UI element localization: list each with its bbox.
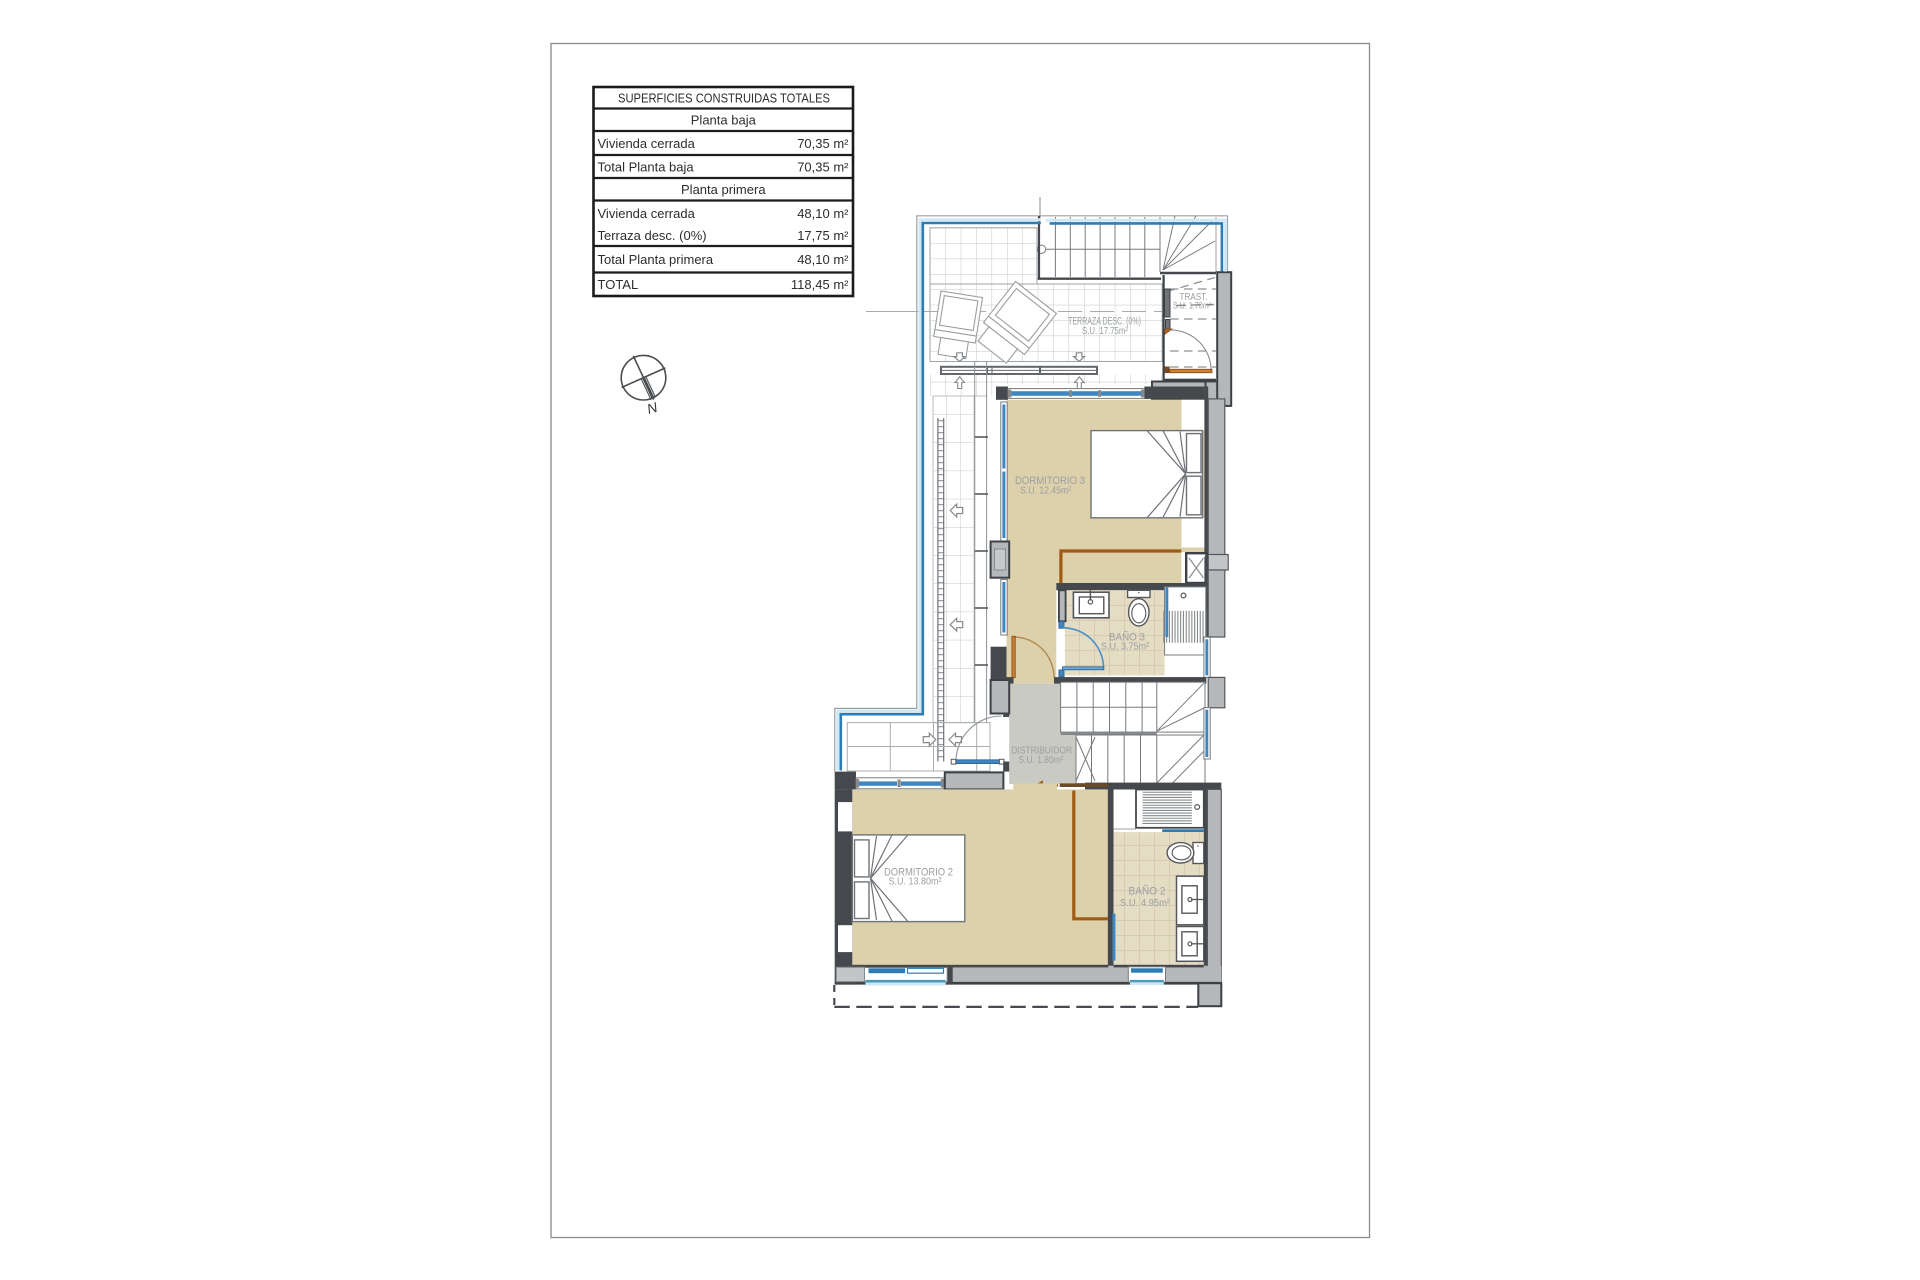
svg-text:TOTAL: TOTAL xyxy=(598,277,639,292)
svg-text:Planta primera: Planta primera xyxy=(681,182,766,197)
svg-text:S.U. 3.75m²: S.U. 3.75m² xyxy=(1101,642,1150,653)
svg-text:SUPERFICIES CONSTRUIDAS TOTALE: SUPERFICIES CONSTRUIDAS TOTALES xyxy=(618,91,830,106)
svg-text:48,10 m²: 48,10 m² xyxy=(797,252,849,267)
svg-text:Terraza desc. (0%): Terraza desc. (0%) xyxy=(598,228,707,243)
svg-text:S.U. 1.80m²: S.U. 1.80m² xyxy=(1019,755,1065,766)
svg-text:Total Planta baja: Total Planta baja xyxy=(598,159,695,174)
svg-text:S.U. 13.80m²: S.U. 13.80m² xyxy=(889,877,943,888)
svg-text:BAÑO 2: BAÑO 2 xyxy=(1129,884,1166,897)
svg-text:118,45 m²: 118,45 m² xyxy=(791,277,849,292)
svg-text:70,35 m²: 70,35 m² xyxy=(797,159,849,174)
svg-text:S.U. 17.75m²: S.U. 17.75m² xyxy=(1082,325,1128,337)
svg-text:48,10 m²: 48,10 m² xyxy=(797,206,849,221)
svg-text:Planta baja: Planta baja xyxy=(691,113,757,128)
svg-text:S.U. 12.45m²: S.U. 12.45m² xyxy=(1020,486,1072,497)
svg-text:Vivienda cerrada: Vivienda cerrada xyxy=(598,206,696,221)
svg-text:17,75 m²: 17,75 m² xyxy=(797,228,849,243)
svg-text:S.U. 4.95m²: S.U. 4.95m² xyxy=(1120,898,1171,909)
svg-text:70,35 m²: 70,35 m² xyxy=(797,136,849,151)
svg-text:Vivienda cerrada: Vivienda cerrada xyxy=(598,136,696,151)
svg-text:Total Planta primera: Total Planta primera xyxy=(598,252,714,267)
